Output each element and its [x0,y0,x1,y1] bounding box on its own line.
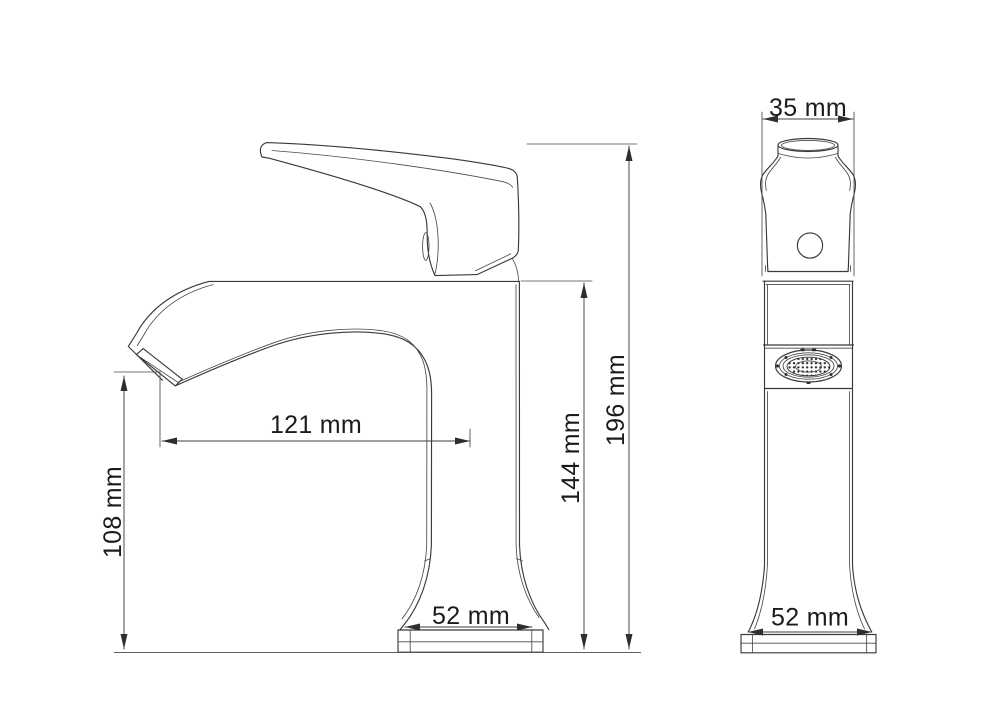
handle-top-rim [782,140,835,150]
drawing-canvas: 121 mm 108 mm 144 mm 196 mm 52 mm [0,0,993,725]
side-view-handle [260,143,518,281]
dim-label-overall-height: 196 mm [602,354,630,446]
handle-base-facet-line [476,254,511,271]
dim-base-width-side: 52 mm [405,602,532,630]
front-view-body [749,281,872,631]
dim-deck-height: 144 mm [521,281,592,649]
dim-base-width-front: 52 mm [748,604,872,633]
handle-cyl-bottom-arc [779,154,838,159]
flare-right [853,566,872,632]
front-view: 35 mm 52 mm [741,94,876,653]
front-view-handle [761,139,856,272]
dim-label-handle-width: 35 mm [769,94,847,122]
front-view-aerator [776,349,842,384]
side-view-spout-body [128,281,549,629]
spout-nose-inner-line [137,285,213,346]
side-view-base [398,630,543,652]
handle-silhouette [260,143,518,276]
handle-shoulder-right [838,156,855,272]
dim-label-base-width-front: 52 mm [771,604,849,632]
spout-underside-body-left [175,332,431,630]
base-plate [398,630,543,652]
dim-label-base-width-side: 52 mm [432,602,510,630]
faucet-dimension-diagram: 121 mm 108 mm 144 mm 196 mm 52 mm [0,0,993,725]
side-view: 121 mm 108 mm 144 mm 196 mm 52 mm [99,143,641,653]
spout-underside-inner-line [179,329,427,619]
handle-to-deck-seam [513,259,519,281]
flare-left [749,566,765,632]
dim-label-outlet-height: 108 mm [99,466,127,558]
dim-label-deck-height: 144 mm [557,412,585,504]
aerator-mesh [787,357,830,376]
handle-shoulder-left [761,156,778,272]
dim-label-spout-reach: 121 mm [270,411,362,439]
body-right-edge [519,281,548,629]
dim-handle-width: 35 mm [762,94,854,276]
front-base-plate [741,635,876,653]
flare-left-inner [755,564,768,629]
handle-screw-hole [797,233,822,258]
front-view-base [741,635,876,653]
dim-spout-reach: 121 mm [114,372,470,447]
dim-overall-height: 196 mm [527,144,637,649]
dim-outlet-height: 108 mm [99,376,127,649]
